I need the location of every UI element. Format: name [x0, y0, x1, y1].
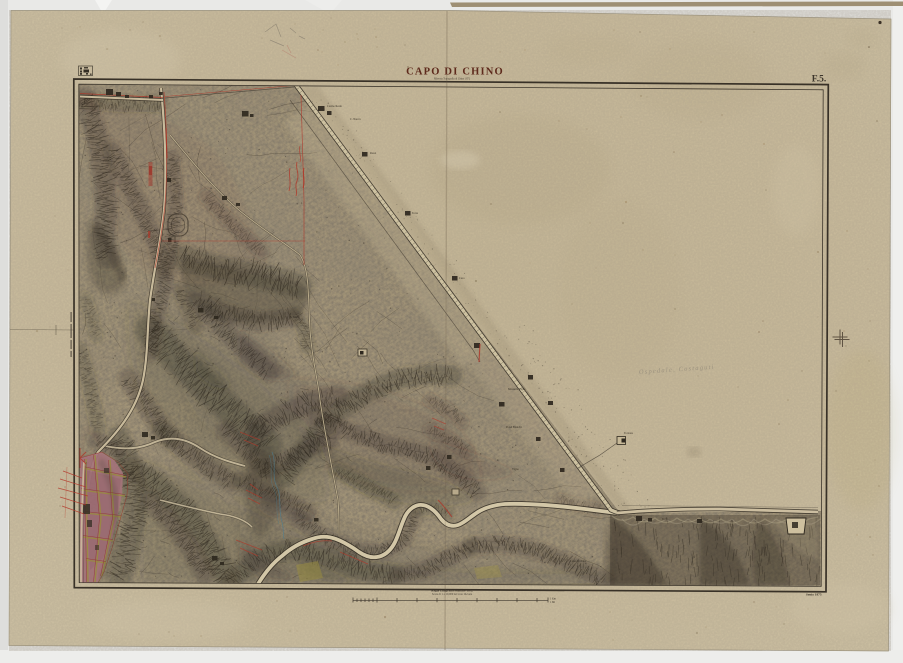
svg-text:Rossi: Rossi	[370, 152, 376, 155]
svg-text:Cava di Pozzolana: Cava di Pozzolana	[200, 568, 222, 571]
svg-text:Pozzi Bianchi: Pozzi Bianchi	[506, 426, 522, 429]
svg-text:Masseria Vigna: Masseria Vigna	[508, 388, 526, 391]
svg-text:C. Nuova: C. Nuova	[350, 118, 361, 121]
svg-text:Casa: Casa	[459, 277, 465, 280]
svg-text:Forzano: Forzano	[624, 432, 634, 435]
svg-text:Forte: Forte	[662, 518, 669, 521]
svg-text:Casino Reale: Casino Reale	[327, 105, 343, 108]
svg-text:S. Maria: S. Maria	[290, 316, 300, 319]
svg-text:Regia Litografia Militare 1872: Regia Litografia Militare 1872	[431, 589, 473, 593]
svg-text:Rilevata Topografia di Chino 1: Rilevata Topografia di Chino 1872	[434, 78, 471, 81]
svg-text:CAPO DI CHINO: CAPO DI CHINO	[406, 67, 504, 78]
svg-text:Capo di Chino: Capo di Chino	[570, 560, 587, 563]
svg-text:1 Mi: 1 Mi	[550, 601, 555, 604]
svg-text:Vigna: Vigna	[512, 468, 519, 471]
svg-text:Scala di 1 a 10,000 del vero r: Scala di 1 a 10,000 del vero rilevata	[432, 593, 473, 596]
svg-text:F.5.: F.5.	[812, 75, 826, 85]
svg-text:Senio 1875: Senio 1875	[806, 593, 822, 597]
svg-text:Torre: Torre	[412, 212, 419, 215]
